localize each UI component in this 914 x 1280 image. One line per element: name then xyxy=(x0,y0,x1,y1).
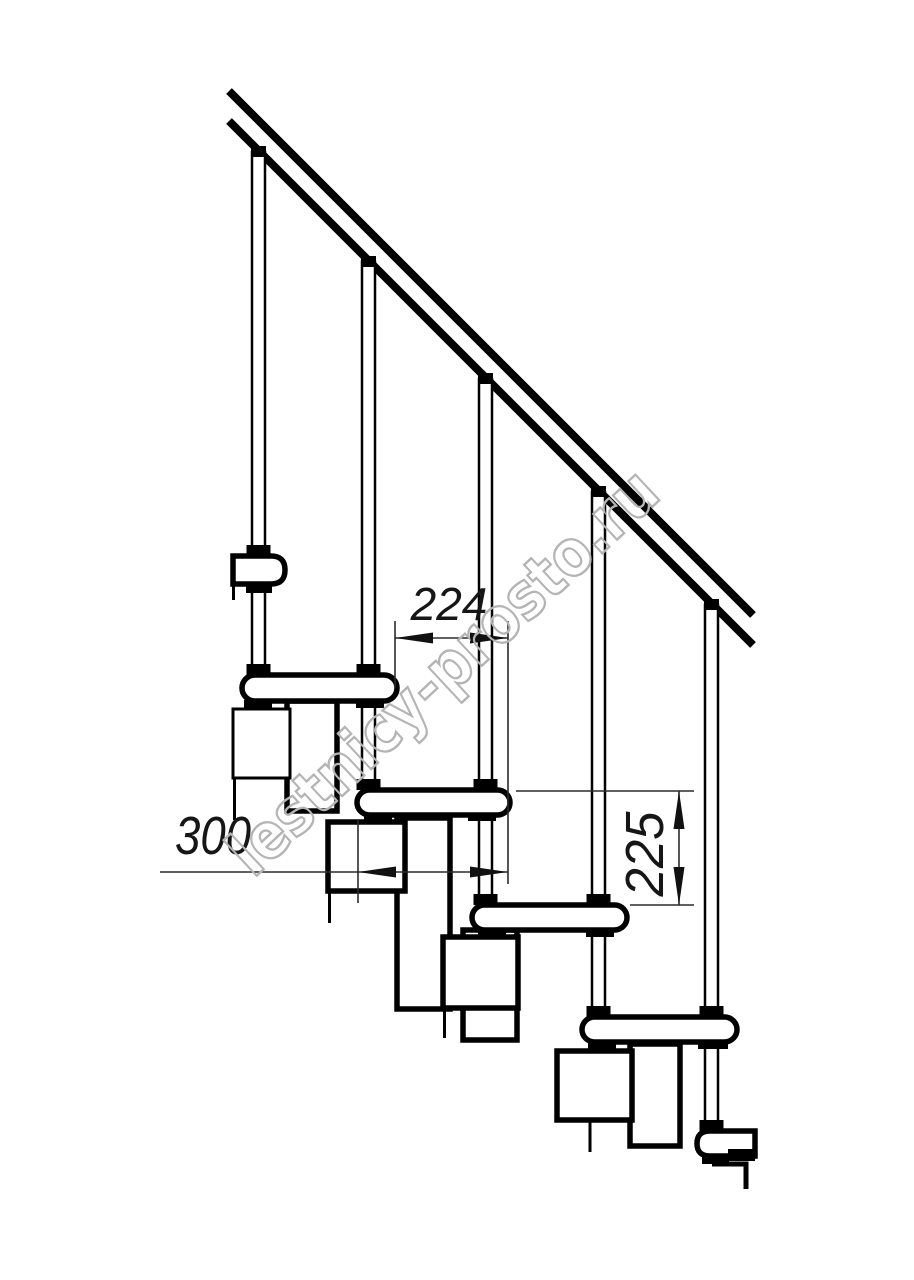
baluster-clamp xyxy=(357,664,381,675)
baluster-1 xyxy=(252,152,265,676)
step-mount-foot xyxy=(698,1041,728,1049)
baluster-clamp xyxy=(474,779,498,790)
arrowhead-down xyxy=(674,867,685,905)
baluster-clamp xyxy=(247,664,271,675)
spine-box-under-step-5 xyxy=(557,1051,632,1120)
spine-box-under-step-2 xyxy=(233,709,290,778)
step-mount-foot xyxy=(468,813,496,821)
step-mount-foot xyxy=(728,1149,755,1161)
baluster-clamp xyxy=(587,894,611,905)
step-5 xyxy=(582,1017,737,1042)
step-mount-foot xyxy=(588,1041,616,1049)
baluster-5-rail-cap xyxy=(704,599,719,610)
dimension-225-label: 225 xyxy=(615,811,675,898)
spine-box-under-step-3 xyxy=(328,822,405,891)
step-mount-foot xyxy=(478,929,506,937)
baluster-1-rail-cap xyxy=(251,146,266,157)
step-1-partial xyxy=(233,556,285,584)
step-6-lower-contour xyxy=(712,1164,746,1189)
step-4 xyxy=(472,905,627,930)
staircase-technical-drawing: 224 300 225 lestnicy-prosto.ru xyxy=(0,0,914,1280)
baluster-clamp xyxy=(587,1006,611,1017)
drawing-canvas: 224 300 225 lestnicy-prosto.ru xyxy=(0,0,914,1280)
step-mount-foot xyxy=(702,1155,729,1164)
spine-box-under-step-4 xyxy=(443,937,518,1008)
arrowhead-up xyxy=(674,791,685,829)
baluster-clamp xyxy=(700,1006,724,1017)
step-mount-foot xyxy=(246,584,272,593)
step-mount-foot xyxy=(364,814,392,822)
step-mount-foot xyxy=(586,929,614,937)
step-3 xyxy=(357,790,510,815)
baluster-clamp xyxy=(474,894,498,905)
step-mount-foot xyxy=(244,700,272,708)
baluster-2-rail-cap xyxy=(361,256,376,267)
baluster-clamp xyxy=(247,545,271,556)
baluster-5 xyxy=(705,605,718,1133)
baluster-clamp xyxy=(700,1120,724,1131)
spine-column-4 xyxy=(630,1044,680,1146)
baluster-3-rail-cap xyxy=(478,373,493,384)
